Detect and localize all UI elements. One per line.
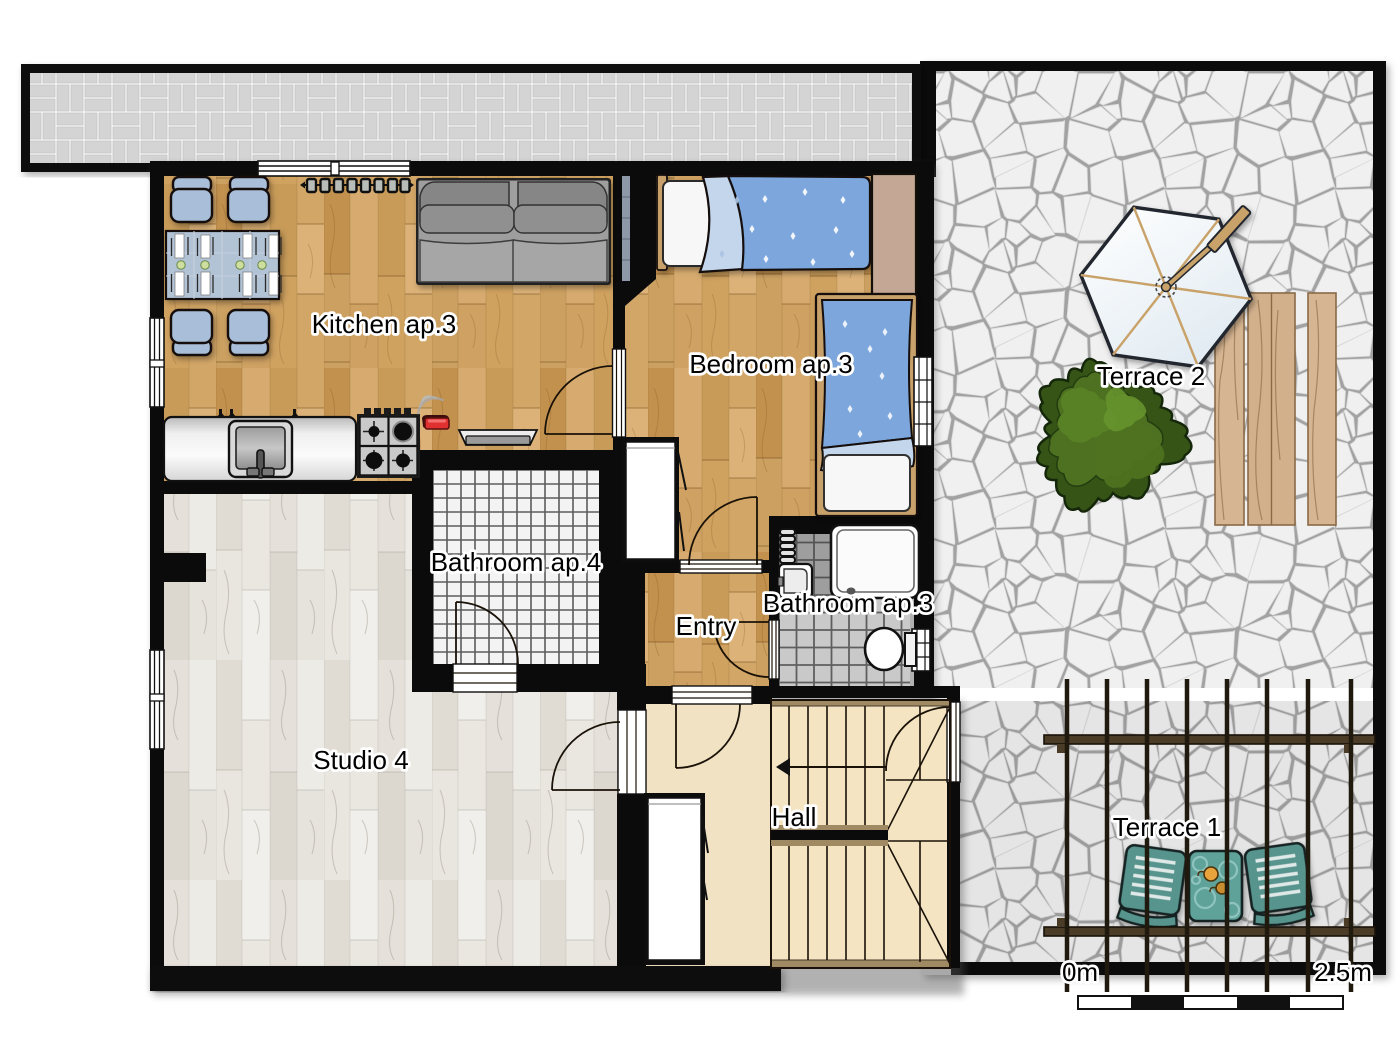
svg-text:Kitchen ap.3: Kitchen ap.3 [312, 309, 457, 339]
svg-text:Terrace 2: Terrace 2 [1097, 361, 1205, 391]
svg-text:2.5m: 2.5m [1314, 957, 1372, 987]
svg-text:Entry: Entry [676, 611, 737, 641]
svg-text:Terrace 1: Terrace 1 [1113, 812, 1221, 842]
svg-text:Studio 4: Studio 4 [313, 745, 408, 775]
svg-text:Bathroom ap.3: Bathroom ap.3 [763, 588, 934, 618]
svg-text:Hall: Hall [772, 802, 817, 832]
svg-text:Bathroom ap.4: Bathroom ap.4 [431, 547, 602, 577]
svg-text:0m: 0m [1062, 957, 1098, 987]
svg-text:Bedroom ap.3: Bedroom ap.3 [689, 349, 852, 379]
